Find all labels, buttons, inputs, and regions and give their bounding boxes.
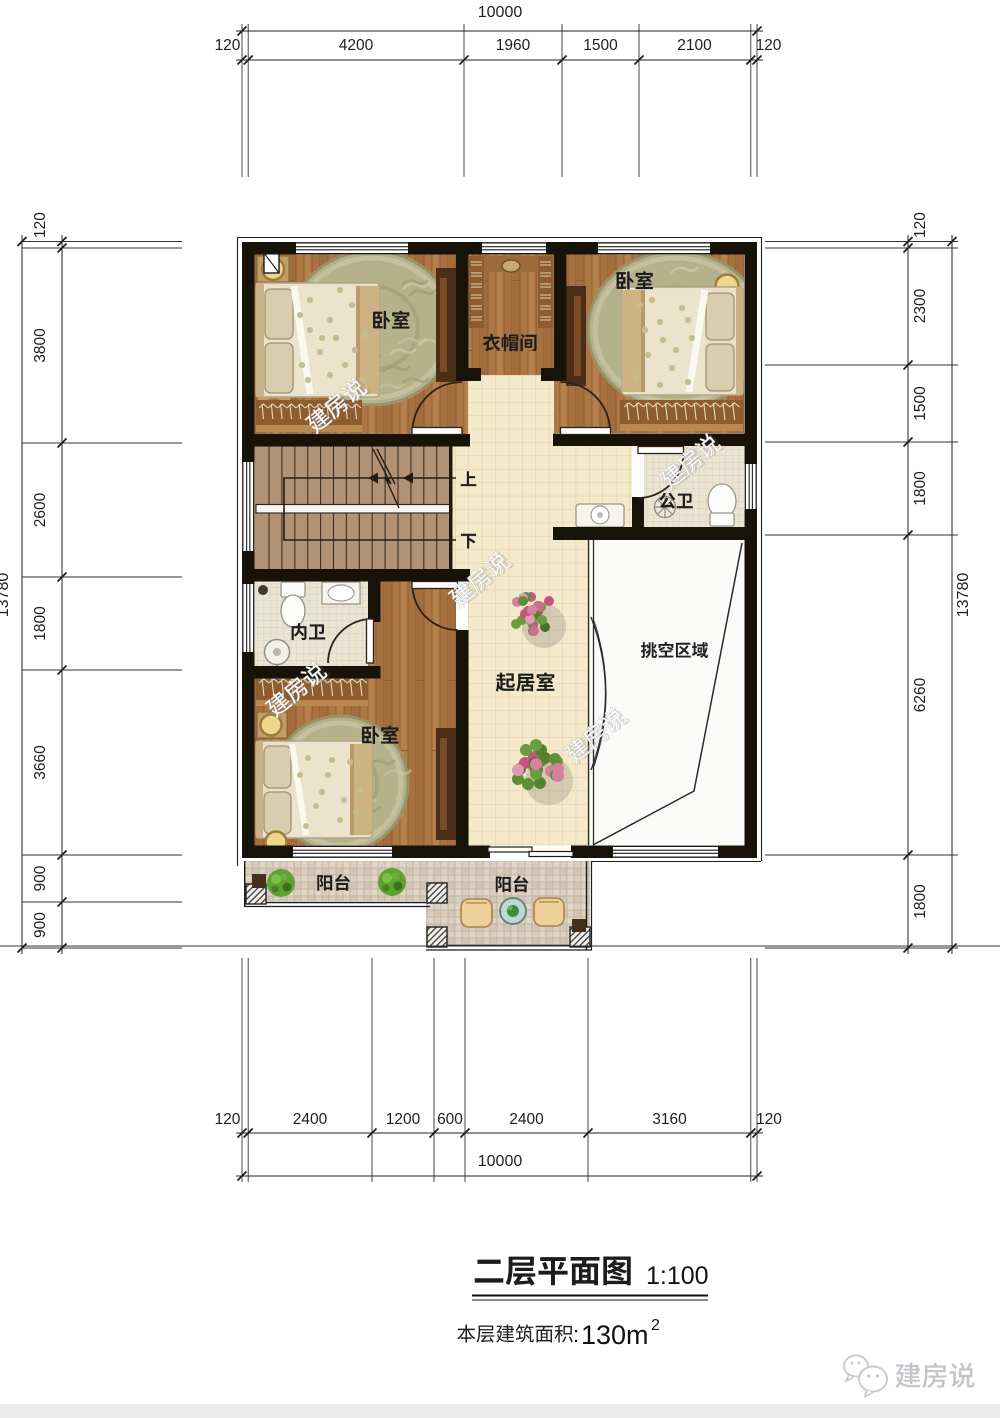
svg-text:2: 2 xyxy=(651,1317,660,1334)
svg-text:120: 120 xyxy=(756,37,782,54)
svg-text:120: 120 xyxy=(756,1111,782,1128)
svg-text:600: 600 xyxy=(437,1111,463,1128)
svg-text:900: 900 xyxy=(32,865,49,891)
svg-text:4200: 4200 xyxy=(339,37,374,54)
svg-text:1500: 1500 xyxy=(583,37,618,54)
svg-text:2400: 2400 xyxy=(509,1111,544,1128)
svg-text:6260: 6260 xyxy=(912,677,929,712)
svg-text:1960: 1960 xyxy=(496,37,531,54)
svg-text:900: 900 xyxy=(32,912,49,938)
svg-text:1800: 1800 xyxy=(912,471,929,506)
svg-text:1800: 1800 xyxy=(912,884,929,919)
svg-text:1:100: 1:100 xyxy=(646,1262,709,1290)
svg-text:2100: 2100 xyxy=(677,37,712,54)
svg-text:1200: 1200 xyxy=(386,1111,421,1128)
svg-text:1800: 1800 xyxy=(32,606,49,641)
svg-text:10000: 10000 xyxy=(478,1153,523,1170)
svg-text:2300: 2300 xyxy=(912,288,929,323)
svg-text:1500: 1500 xyxy=(912,386,929,421)
svg-text:2400: 2400 xyxy=(293,1111,328,1128)
svg-text:13780: 13780 xyxy=(0,573,12,618)
svg-text:3660: 3660 xyxy=(32,745,49,780)
svg-text:120: 120 xyxy=(215,37,241,54)
svg-text:3160: 3160 xyxy=(652,1111,687,1128)
svg-text:120: 120 xyxy=(912,212,929,238)
svg-text:120: 120 xyxy=(215,1111,241,1128)
svg-text:130m: 130m xyxy=(581,1320,649,1350)
svg-text:120: 120 xyxy=(32,212,49,238)
svg-text:10000: 10000 xyxy=(478,4,523,21)
svg-text:13780: 13780 xyxy=(955,573,972,618)
svg-text:3800: 3800 xyxy=(32,328,49,363)
svg-text::: : xyxy=(573,1322,579,1347)
svg-text:2600: 2600 xyxy=(32,492,49,527)
